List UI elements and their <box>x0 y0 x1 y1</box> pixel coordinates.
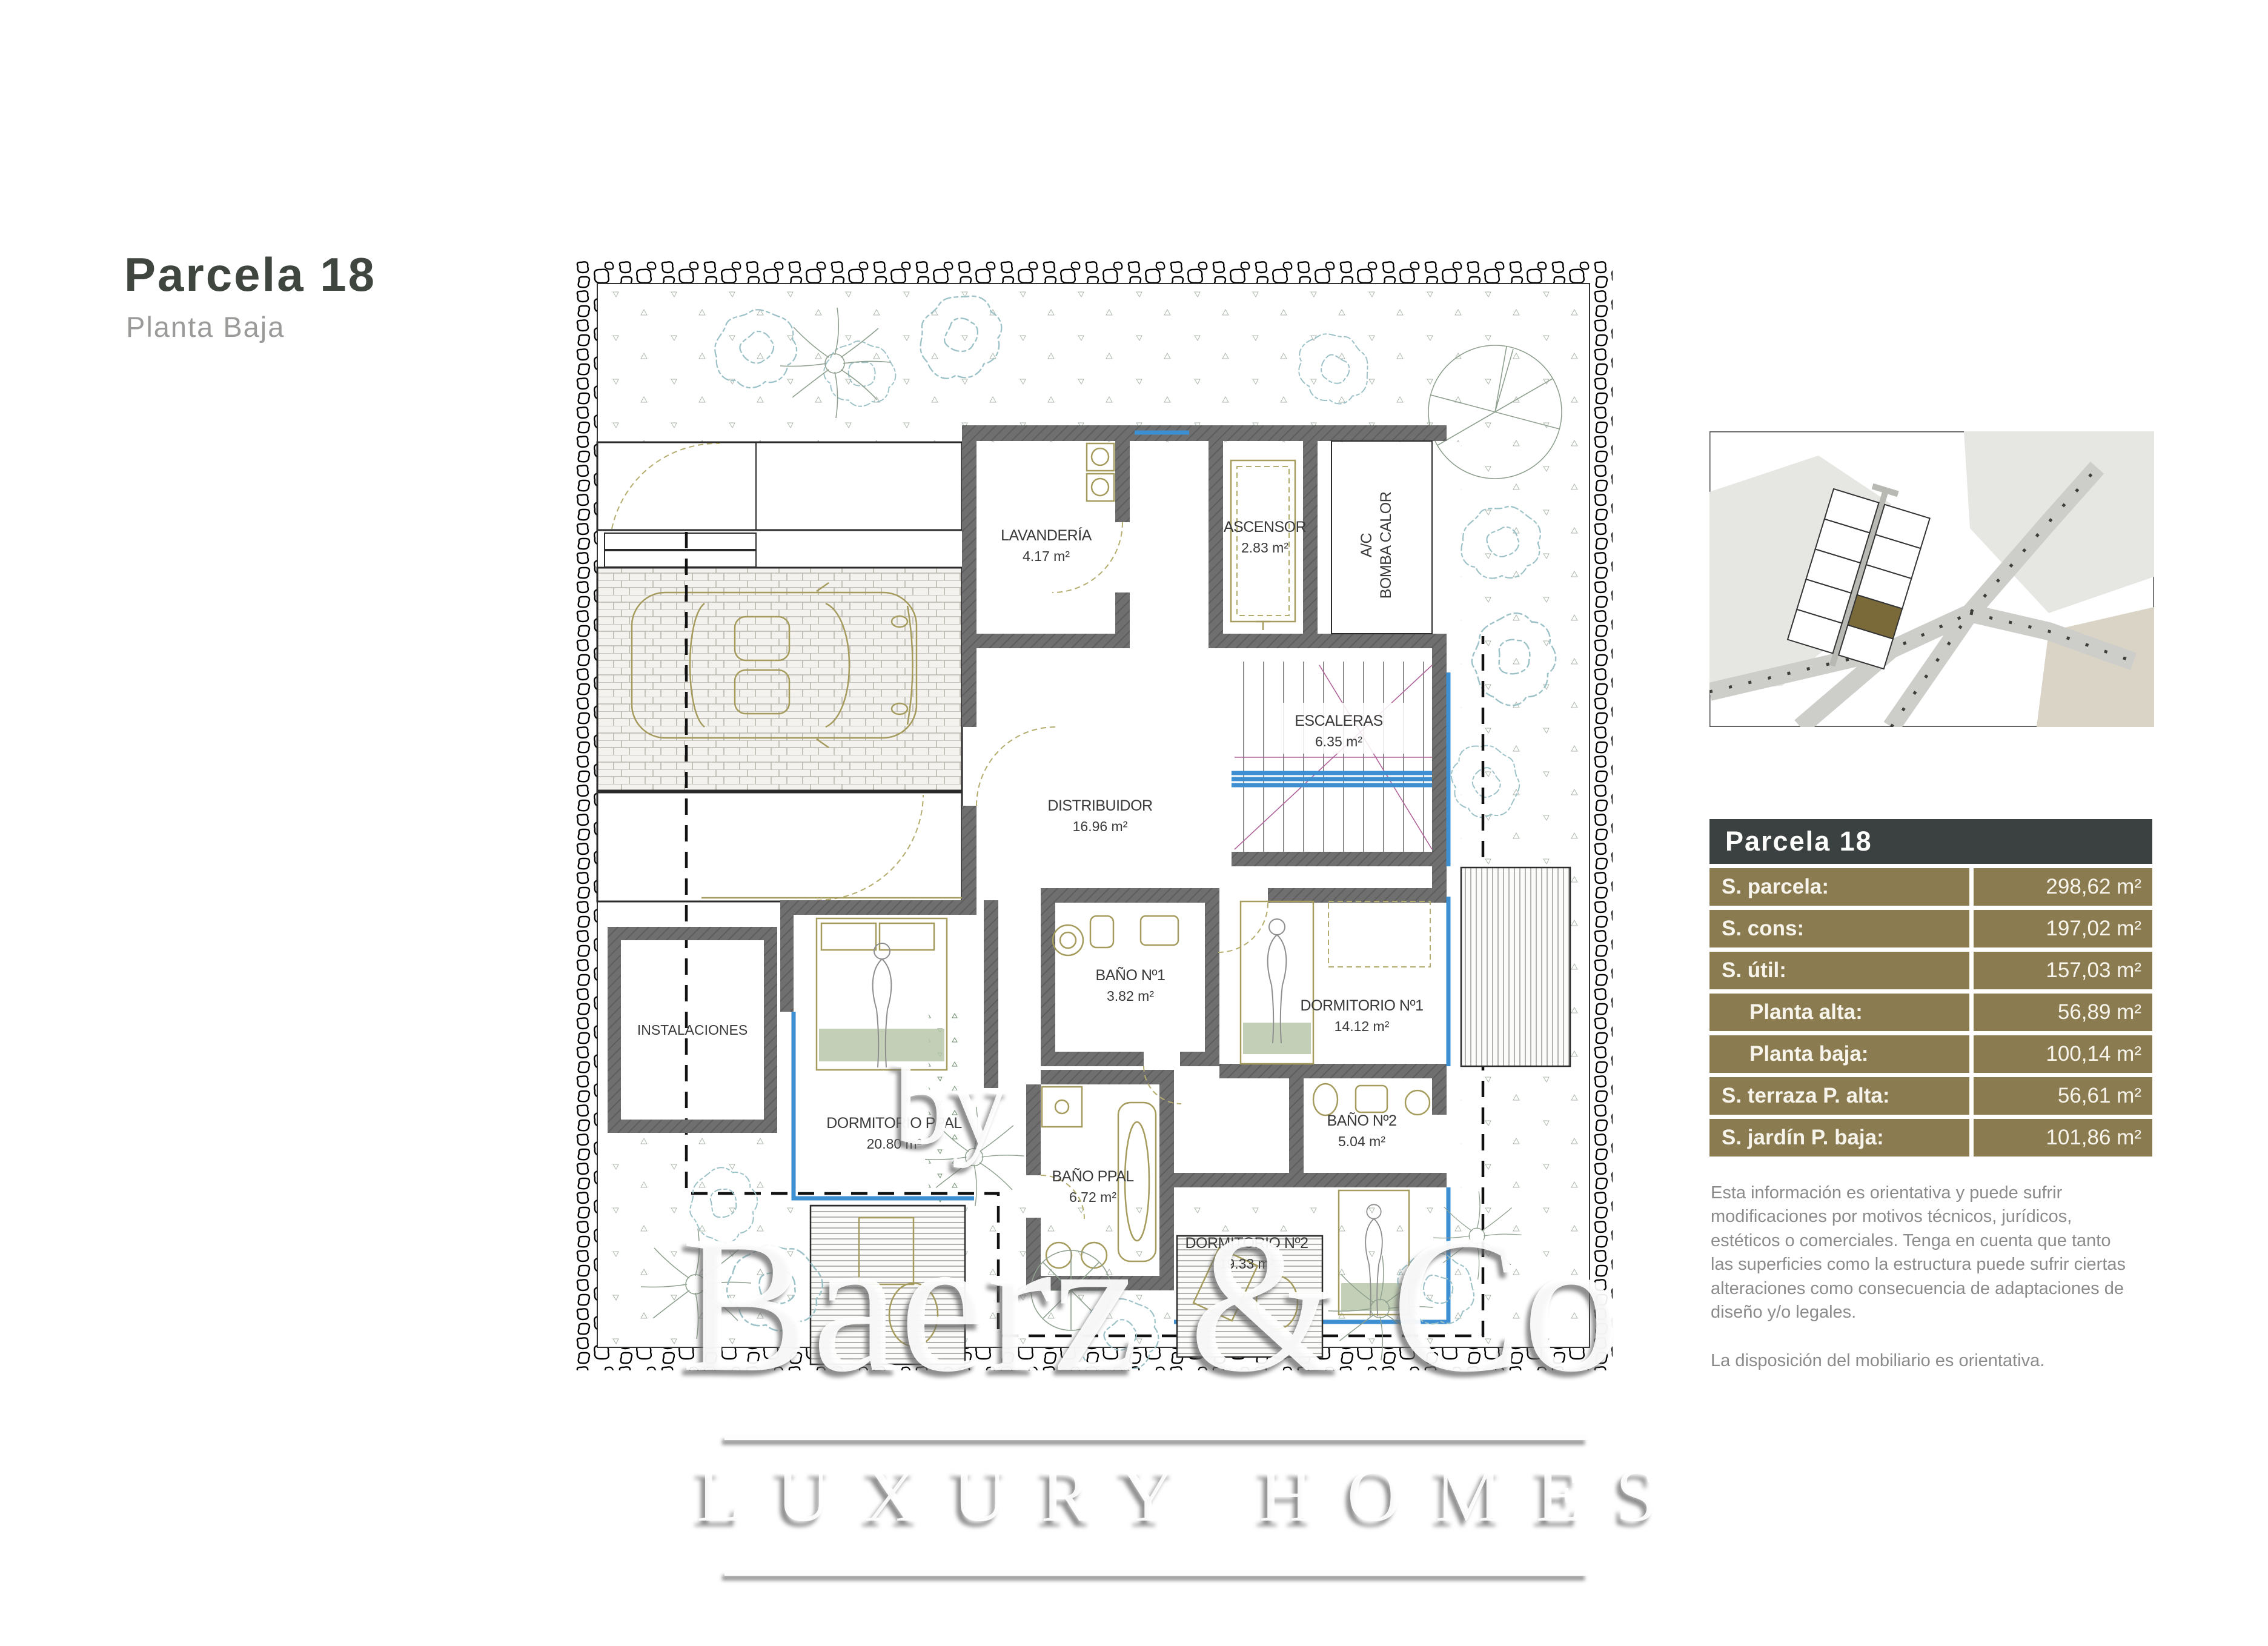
row-label: S. cons: <box>1709 910 1969 947</box>
summary-table-header: Parcela 18 <box>1709 819 2152 864</box>
room-label-bano1: BAÑO Nº1 <box>1096 966 1165 984</box>
table-row-planta-alta: Planta alta: 56,89 m² <box>1709 994 2152 1031</box>
side-terrace-deck <box>1461 868 1570 1066</box>
table-row-jardin: S. jardín P. baja: 101,86 m² <box>1709 1119 2152 1157</box>
row-value: 157,03 m² <box>1974 952 2152 989</box>
row-value: 101,86 m² <box>1974 1119 2152 1157</box>
room-area-dormitorio1: 14.12 m² <box>1335 1018 1390 1034</box>
disclaimer-paragraph-1: Esta información es orientativa y puede … <box>1711 1181 2135 1325</box>
room-label-dormitorio1: DORMITORIO Nº1 <box>1300 997 1423 1014</box>
watermark-rule-bottom <box>724 1570 1587 1576</box>
table-row-planta-baja: Planta baja: 100,14 m² <box>1709 1035 2152 1073</box>
row-value: 56,89 m² <box>1974 994 2152 1031</box>
row-label: S. terraza P. alta: <box>1709 1077 1969 1115</box>
row-value: 56,61 m² <box>1974 1077 2152 1115</box>
row-label: S. parcela: <box>1709 868 1969 906</box>
page-subtitle: Planta Baja <box>126 310 285 343</box>
room-area-distribuidor: 16.96 m² <box>1073 818 1128 834</box>
room-label-bano-ppal: BAÑO PPAL <box>1052 1167 1134 1185</box>
watermark-brand: Baerz & Co <box>678 1190 1623 1417</box>
table-row-parcela: S. parcela: 298,62 m² <box>1709 868 2152 906</box>
table-row-terraza: S. terraza P. alta: 56,61 m² <box>1709 1077 2152 1115</box>
watermark-rule-top <box>724 1435 1587 1440</box>
room-area-ascensor: 2.83 m² <box>1241 540 1288 556</box>
room-label-ac-line1: A/C <box>1358 533 1375 557</box>
room-label-ac-line2: BOMBA CALOR <box>1378 492 1394 599</box>
brochure-page: Parcela 18 Planta Baja <box>0 0 2268 1646</box>
room-label-instalaciones: INSTALACIONES <box>637 1022 748 1038</box>
room-area-bano2: 5.04 m² <box>1338 1133 1385 1149</box>
summary-table: Parcela 18 S. parcela: 298,62 m² S. cons… <box>1709 819 2152 1157</box>
row-value: 197,02 m² <box>1974 910 2152 947</box>
room-area-escaleras: 6.35 m² <box>1315 734 1362 749</box>
table-row-cons: S. cons: 197,02 m² <box>1709 910 2152 947</box>
room-area-lavanderia: 4.17 m² <box>1023 548 1070 564</box>
room-label-distribuidor: DISTRIBUIDOR <box>1047 797 1152 814</box>
room-label-bano2: BAÑO Nº2 <box>1327 1112 1397 1129</box>
row-value: 298,62 m² <box>1974 868 2152 906</box>
row-value: 100,14 m² <box>1974 1035 2152 1073</box>
row-label: Planta alta: <box>1709 994 1969 1031</box>
row-label: S. útil: <box>1709 952 1969 989</box>
disclaimer-paragraph-2: La disposición del mobiliario es orienta… <box>1711 1349 2135 1373</box>
row-label: Planta baja: <box>1709 1035 1969 1073</box>
room-label-escaleras: ESCALERAS <box>1295 712 1383 729</box>
table-row-util: S. útil: 157,03 m² <box>1709 952 2152 989</box>
site-map-thumbnail <box>1709 431 2154 727</box>
room-area-bano1: 3.82 m² <box>1107 988 1154 1004</box>
row-label: S. jardín P. baja: <box>1709 1119 1969 1157</box>
room-label-ascensor: ASCENSOR <box>1224 519 1306 536</box>
garage-driveway <box>597 568 962 791</box>
room-label-lavanderia: LAVANDERÍA <box>1001 526 1092 544</box>
watermark-by: by <box>848 1039 1054 1171</box>
watermark-tagline: LUXURY HOMES <box>697 1453 1587 1539</box>
page-title: Parcela 18 <box>124 247 376 302</box>
disclaimer: Esta información es orientativa y puede … <box>1711 1181 2135 1397</box>
